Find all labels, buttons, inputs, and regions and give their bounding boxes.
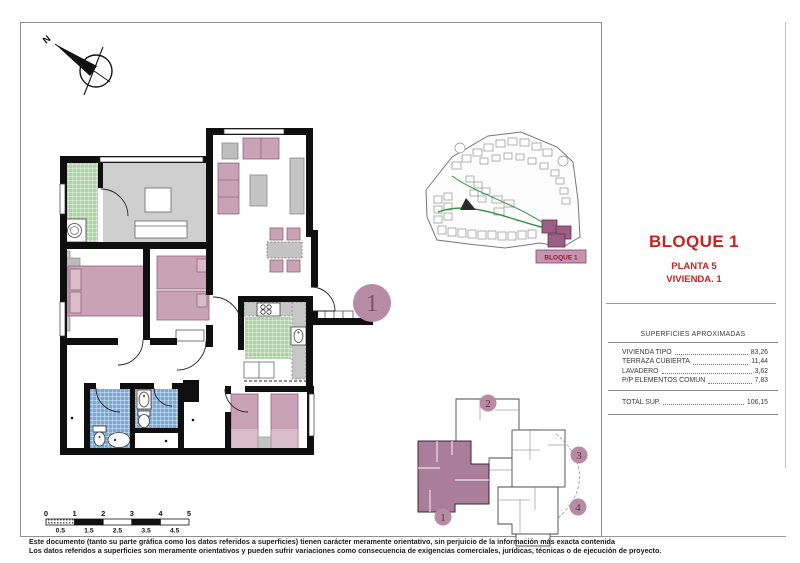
dotted-leader <box>675 353 748 355</box>
dotted-leader <box>662 372 752 374</box>
title-block: BLOQUE 1 PLANTA 5 VIVIENDA. 1 <box>606 232 782 285</box>
floor-plan: 1 <box>60 128 391 455</box>
scale-bar: 0 1 2 3 4 5 0.5 1.5 2.5 3.5 4.5 <box>44 509 191 535</box>
terrace-table <box>145 188 171 212</box>
scale-minor: 0.5 <box>56 528 66 535</box>
coffee-table <box>250 175 267 206</box>
row-label: LAVADERO <box>622 367 659 376</box>
scale-major: 3 <box>130 509 134 518</box>
dotted-leader <box>693 363 748 365</box>
toilet-icon <box>138 411 150 428</box>
entry-step <box>325 311 353 319</box>
bench-chest <box>176 330 204 341</box>
kitchen-tiles <box>245 317 291 359</box>
unit-title: VIVIENDA. 1 <box>606 274 782 285</box>
plan-sheet: N <box>0 0 800 563</box>
table-row: P/P ELEMENTOS COMUN 7,83 <box>622 376 768 385</box>
dining-table <box>267 242 302 258</box>
site-plan: BLOQUE 1 <box>426 132 586 263</box>
panel-divider <box>606 303 776 304</box>
cabinet <box>290 158 304 214</box>
scale-minor: 2.5 <box>113 528 123 535</box>
disclaimer: Este documento (tanto su parte gráfica c… <box>29 538 793 555</box>
site-block-label: BLOQUE 1 <box>536 250 586 263</box>
scale-major: 0 <box>44 509 48 518</box>
block-title: BLOQUE 1 <box>606 232 782 252</box>
sofa-left <box>218 163 239 214</box>
disclaimer-line-2: Los datos referidos a superficies son me… <box>29 547 793 556</box>
washbasin-icon <box>137 390 151 409</box>
areas-table-total: TOTAL SUP. 106,15 <box>608 391 778 415</box>
chair <box>270 260 283 272</box>
row-value: 11,44 <box>751 357 768 366</box>
areas-table: SUPERFICIES APROXIMADAS VIVIENDA TIPO 83… <box>608 331 778 415</box>
tv-unit <box>222 143 238 159</box>
toilet-icon <box>93 426 106 446</box>
row-value: 3,62 <box>755 367 768 376</box>
dotted-leader <box>708 382 751 384</box>
table-row: LAVADERO 3,62 <box>622 367 768 376</box>
chair <box>287 228 300 240</box>
scale-minor: 1.5 <box>84 528 94 535</box>
chair <box>270 228 283 240</box>
row-value: 83,26 <box>751 348 768 357</box>
scale-major: 5 <box>187 509 191 518</box>
row-value: 7,83 <box>755 376 768 385</box>
row-label: VIVIENDA TIPO <box>622 348 672 357</box>
sink-icon <box>291 327 306 345</box>
terrace-bench <box>135 221 187 238</box>
unit-marker: 1 <box>353 284 391 322</box>
scale-major: 2 <box>101 509 105 518</box>
row-label: TERRAZA CUBIERTA <box>622 357 690 366</box>
total-value: 106,15 <box>747 398 768 407</box>
areas-table-rows: VIVIENDA TIPO 83,26 TERRAZA CUBIERTA 11,… <box>608 343 778 391</box>
scale-major: 1 <box>73 509 77 518</box>
key-marker-2: 2 <box>485 398 491 410</box>
key-marker-1: 1 <box>440 512 446 524</box>
row-label: P/P ELEMENTOS COMUN <box>622 376 705 385</box>
chair <box>287 260 300 272</box>
compass-icon: N <box>41 33 112 95</box>
site-block-label-text: BLOQUE 1 <box>544 255 578 262</box>
table-row: TERRAZA CUBIERTA 11,44 <box>622 357 768 366</box>
bathtub-icon <box>108 433 130 448</box>
key-marker-3: 3 <box>576 450 582 462</box>
areas-table-header: SUPERFICIES APROXIMADAS <box>608 331 778 343</box>
total-label: TOTAL SUP. <box>622 398 660 407</box>
table-row-total: TOTAL SUP. 106,15 <box>622 398 768 407</box>
stove-icon <box>257 303 280 316</box>
floor-title: PLANTA 5 <box>606 261 782 272</box>
compass-north-label: N <box>41 33 53 46</box>
key-marker-4: 4 <box>575 502 581 514</box>
scale-minor: 3.5 <box>141 528 151 535</box>
table-row: VIVIENDA TIPO 83,26 <box>622 348 768 357</box>
dotted-leader <box>663 403 744 405</box>
scale-major: 4 <box>158 509 163 518</box>
key-plan: 2 3 4 1 <box>418 395 588 547</box>
scale-minor: 4.5 <box>170 528 180 535</box>
unit-marker-number: 1 <box>366 291 378 317</box>
